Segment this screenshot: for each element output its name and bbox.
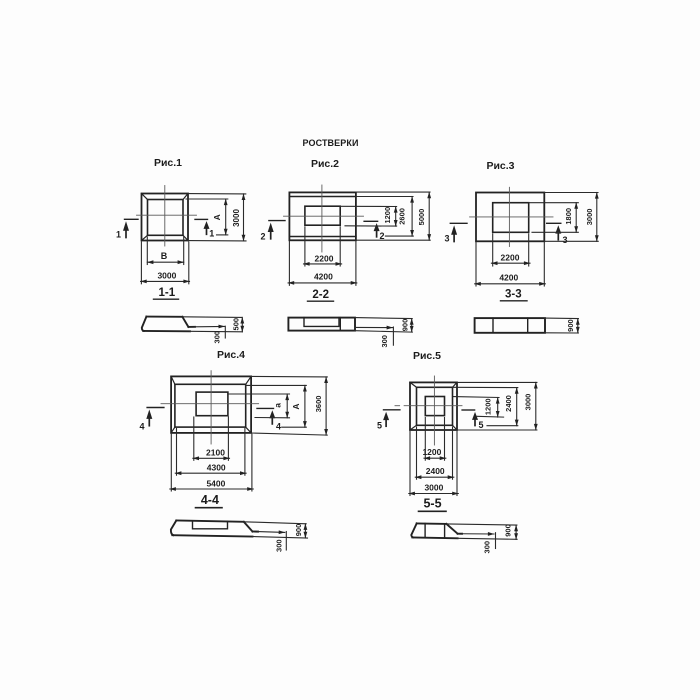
svg-text:1200: 1200 xyxy=(484,398,493,415)
svg-text:3000: 3000 xyxy=(232,209,241,227)
svg-text:4200: 4200 xyxy=(314,272,333,282)
svg-text:1200: 1200 xyxy=(383,207,392,224)
svg-text:4: 4 xyxy=(139,421,144,431)
svg-text:4200: 4200 xyxy=(499,273,518,283)
svg-text:5: 5 xyxy=(478,420,483,430)
svg-text:900: 900 xyxy=(400,319,409,332)
svg-text:Рис.2: Рис.2 xyxy=(311,158,339,170)
svg-text:3600: 3600 xyxy=(314,396,323,413)
svg-text:900: 900 xyxy=(294,524,303,537)
svg-text:5-5: 5-5 xyxy=(423,497,441,511)
svg-text:2400: 2400 xyxy=(504,395,513,412)
svg-text:900: 900 xyxy=(504,524,513,537)
svg-text:2200: 2200 xyxy=(501,253,520,263)
svg-text:Рис.5: Рис.5 xyxy=(413,350,441,362)
svg-text:B: B xyxy=(161,251,168,261)
svg-text:4300: 4300 xyxy=(207,463,226,473)
svg-text:A: A xyxy=(291,403,301,409)
svg-text:2-2: 2-2 xyxy=(312,289,329,301)
svg-text:3-3: 3-3 xyxy=(505,289,522,301)
svg-text:2100: 2100 xyxy=(206,448,225,458)
svg-text:300: 300 xyxy=(380,335,389,348)
svg-text:Рис.4: Рис.4 xyxy=(217,349,245,361)
svg-text:1: 1 xyxy=(116,230,121,240)
svg-text:4-4: 4-4 xyxy=(201,493,219,507)
svg-text:2: 2 xyxy=(379,231,384,241)
svg-text:РОСТВЕРКИ: РОСТВЕРКИ xyxy=(302,138,358,148)
svg-text:2: 2 xyxy=(260,232,265,242)
svg-text:300: 300 xyxy=(275,539,284,552)
svg-text:5400: 5400 xyxy=(206,478,225,488)
svg-text:500: 500 xyxy=(232,318,241,331)
svg-text:5: 5 xyxy=(377,420,382,430)
svg-text:a: a xyxy=(273,403,283,408)
svg-text:3: 3 xyxy=(562,235,567,245)
svg-text:900: 900 xyxy=(566,319,575,332)
svg-text:4: 4 xyxy=(276,422,281,432)
svg-text:300: 300 xyxy=(482,541,491,554)
svg-text:3000: 3000 xyxy=(523,394,532,411)
svg-text:3000: 3000 xyxy=(157,270,176,280)
svg-text:Рис.1: Рис.1 xyxy=(154,157,182,169)
svg-text:2400: 2400 xyxy=(426,466,445,476)
svg-text:1800: 1800 xyxy=(564,208,573,225)
svg-text:Рис.3: Рис.3 xyxy=(486,160,514,172)
svg-text:3000: 3000 xyxy=(585,209,594,226)
svg-text:5000: 5000 xyxy=(417,209,426,226)
svg-text:2200: 2200 xyxy=(315,253,334,263)
svg-text:3000: 3000 xyxy=(424,482,443,492)
svg-text:1200: 1200 xyxy=(422,447,441,457)
svg-text:2600: 2600 xyxy=(398,208,407,225)
svg-text:1-1: 1-1 xyxy=(158,287,175,299)
svg-text:1: 1 xyxy=(209,229,214,239)
svg-text:3: 3 xyxy=(444,233,449,243)
svg-text:A: A xyxy=(212,214,222,220)
svg-text:300: 300 xyxy=(213,331,222,344)
